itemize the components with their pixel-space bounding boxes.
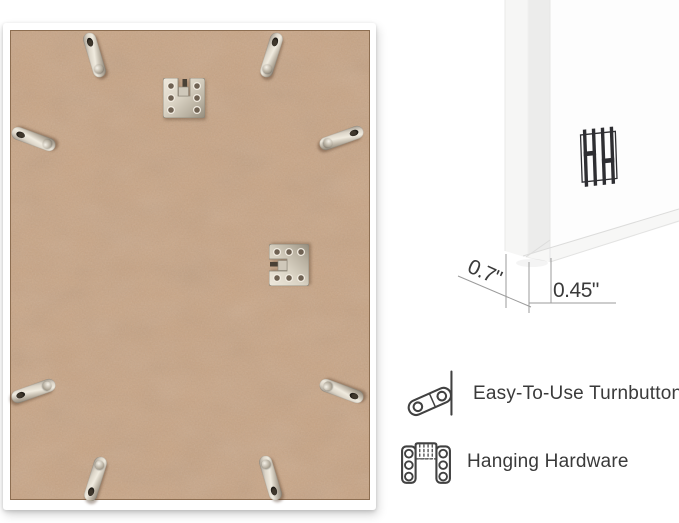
- hanging-hardware-plate: [269, 244, 309, 286]
- frame-bevel-face: [528, 0, 550, 262]
- frame-side-face: [505, 0, 528, 258]
- feature-row-turnbuttons: Easy-To-Use Turnbuttons: [400, 368, 679, 420]
- feature-label: Easy-To-Use Turnbuttons: [473, 383, 679, 405]
- hanging-hardware-icon: [400, 439, 452, 485]
- frame-corner-view: 0.7" 0.45": [440, 0, 679, 340]
- turnbutton-hole: [15, 391, 26, 400]
- product-image: 0.7" 0.45" Easy-To-Use Turnbuttons: [0, 0, 679, 523]
- turnbutton-hole: [86, 37, 94, 47]
- turnbutton-hole: [87, 487, 95, 497]
- plate-tab: [278, 261, 287, 271]
- turnbutton-hole: [349, 392, 360, 401]
- feature-label: Hanging Hardware: [467, 451, 629, 473]
- plate-tab: [179, 87, 189, 96]
- turnbutton-hole: [270, 486, 278, 496]
- turnbutton-hole: [349, 129, 360, 138]
- hanging-hardware-plate: [163, 78, 205, 118]
- turnbutton-screw: [94, 460, 105, 471]
- turnbutton-hole: [271, 37, 279, 47]
- turnbutton-screw: [261, 459, 272, 470]
- brand-logo-icon: [576, 124, 624, 190]
- turnbutton-screw: [262, 63, 273, 74]
- turnbutton-hole: [15, 130, 26, 139]
- turnbutton-icon: [400, 368, 458, 420]
- turnbutton-screw: [41, 380, 53, 392]
- depth-measurement: 0.7": [464, 255, 505, 290]
- width-measurement: 0.45": [553, 279, 599, 302]
- frame-back-photo: [3, 23, 376, 510]
- feature-row-hanging-hardware: Hanging Hardware: [400, 436, 629, 488]
- turnbutton-screw: [322, 137, 334, 149]
- turnbutton-screw: [93, 63, 104, 74]
- turnbutton-screw: [41, 138, 53, 150]
- turnbutton-screw: [322, 380, 334, 392]
